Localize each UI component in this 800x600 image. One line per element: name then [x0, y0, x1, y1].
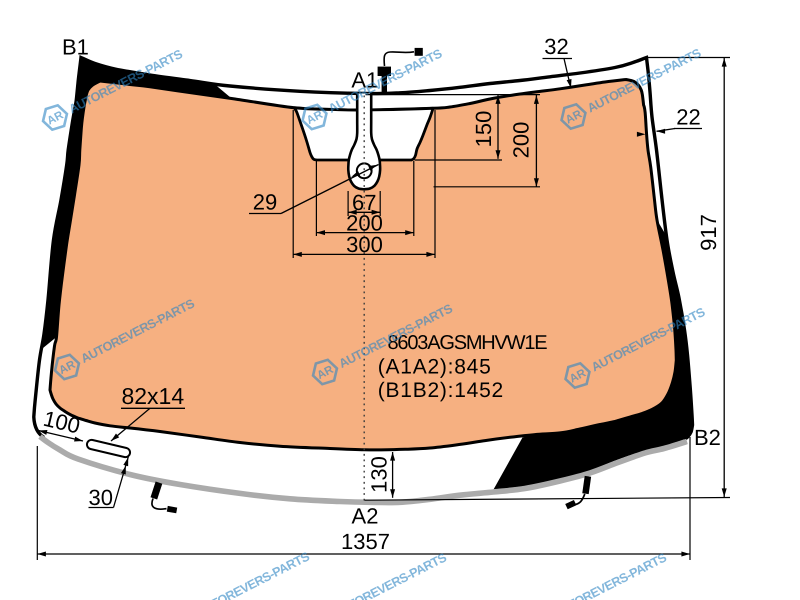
svg-text:32: 32	[544, 34, 568, 59]
svg-text:82x14: 82x14	[121, 383, 184, 409]
svg-text:29: 29	[253, 190, 277, 215]
svg-text:130: 130	[367, 456, 392, 493]
svg-text:200: 200	[509, 122, 534, 159]
svg-text:150: 150	[471, 111, 496, 148]
svg-text:22: 22	[676, 105, 700, 130]
svg-text:(A1A2):845: (A1A2):845	[378, 356, 492, 379]
svg-text:30: 30	[89, 485, 113, 510]
svg-text:917: 917	[696, 214, 721, 251]
svg-text:A2: A2	[352, 504, 379, 529]
svg-text:(B1B2):1452: (B1B2):1452	[378, 379, 504, 402]
svg-text:300: 300	[346, 232, 383, 257]
svg-text:1357: 1357	[341, 529, 390, 554]
svg-text:B1: B1	[62, 35, 89, 60]
svg-text:B2: B2	[694, 425, 721, 450]
